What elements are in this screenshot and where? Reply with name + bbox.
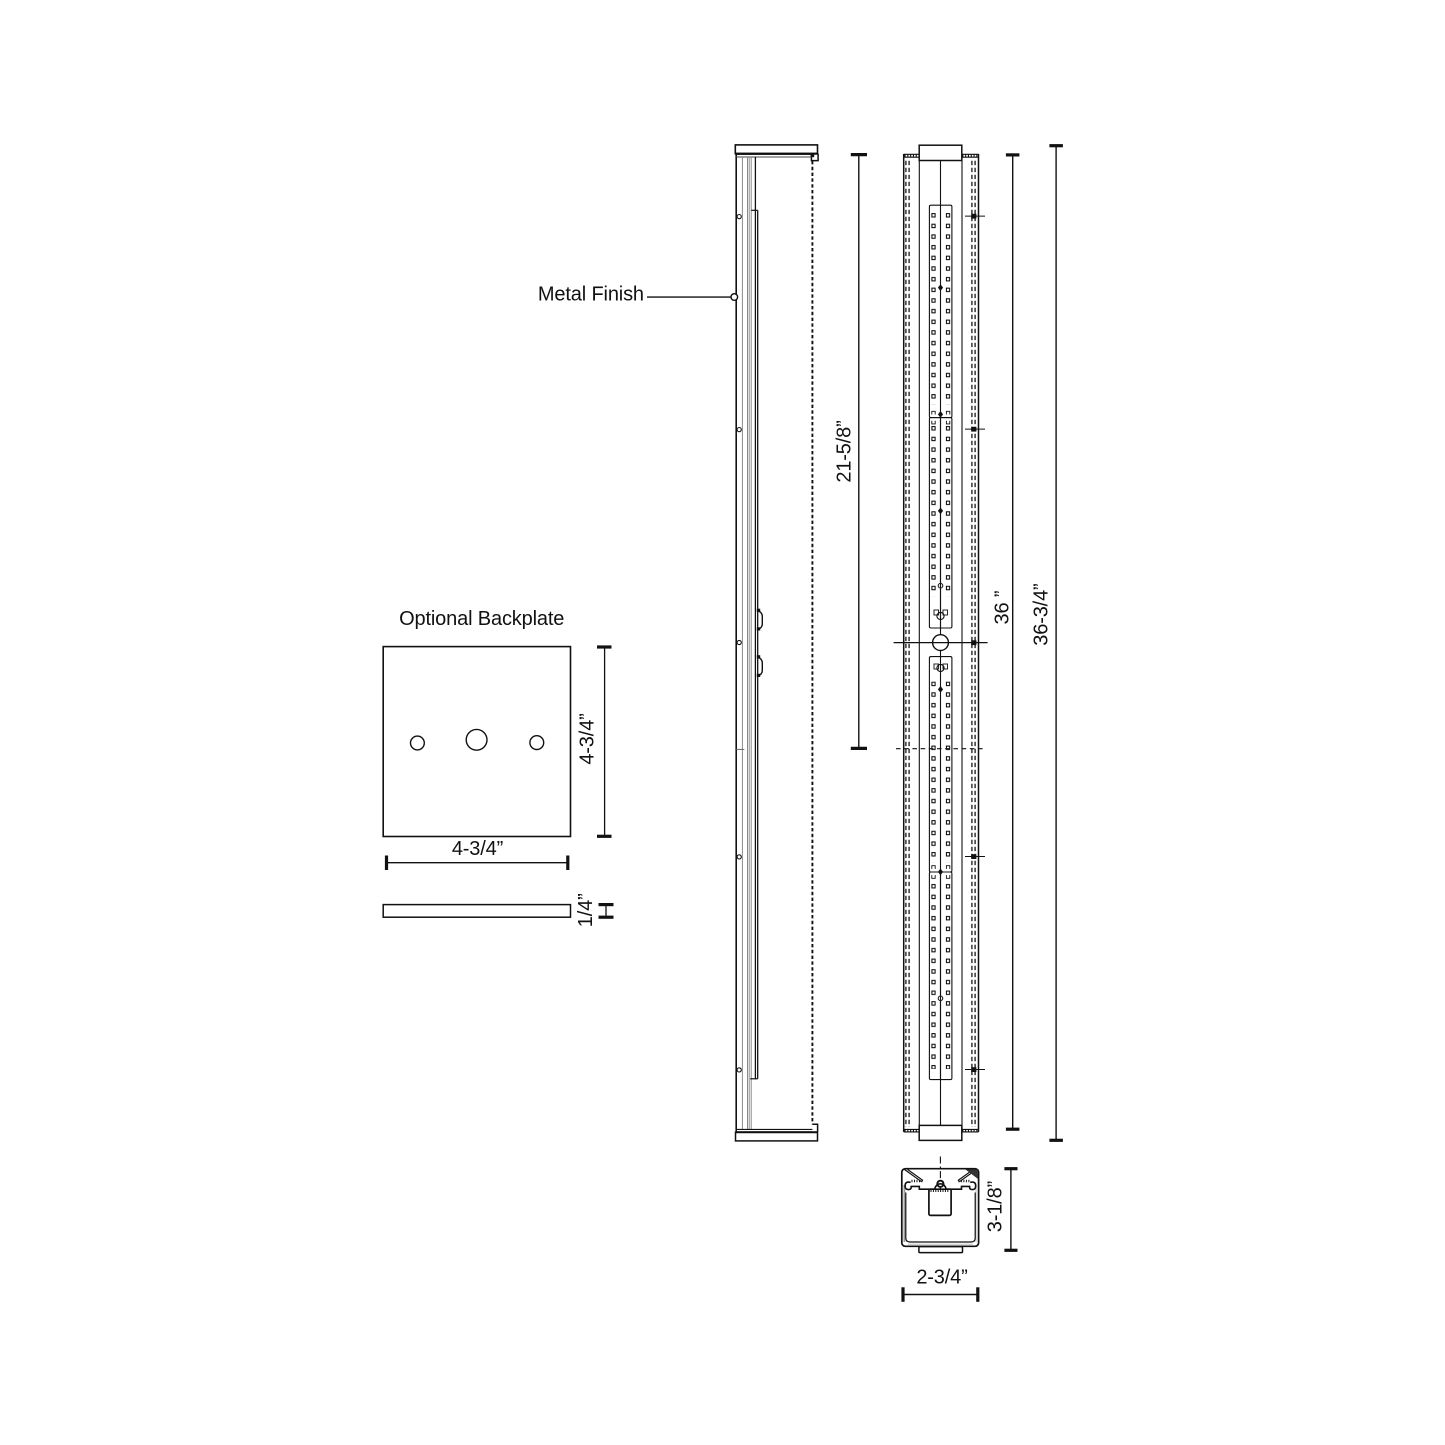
svg-text:Optional Backplate: Optional Backplate — [399, 608, 564, 630]
svg-text:3-1/8”: 3-1/8” — [985, 1181, 1007, 1232]
svg-text:36-3/4”: 36-3/4” — [1031, 583, 1053, 645]
svg-text:1/4”: 1/4” — [575, 893, 597, 927]
svg-text:21-5/8”: 21-5/8” — [834, 420, 856, 482]
svg-text:4-3/4”: 4-3/4” — [577, 713, 599, 764]
svg-text:Metal Finish: Metal Finish — [538, 284, 644, 306]
svg-text:2-3/4”: 2-3/4” — [916, 1267, 967, 1289]
svg-text:4-3/4”: 4-3/4” — [452, 838, 503, 860]
svg-text:36 ”: 36 ” — [991, 591, 1013, 625]
